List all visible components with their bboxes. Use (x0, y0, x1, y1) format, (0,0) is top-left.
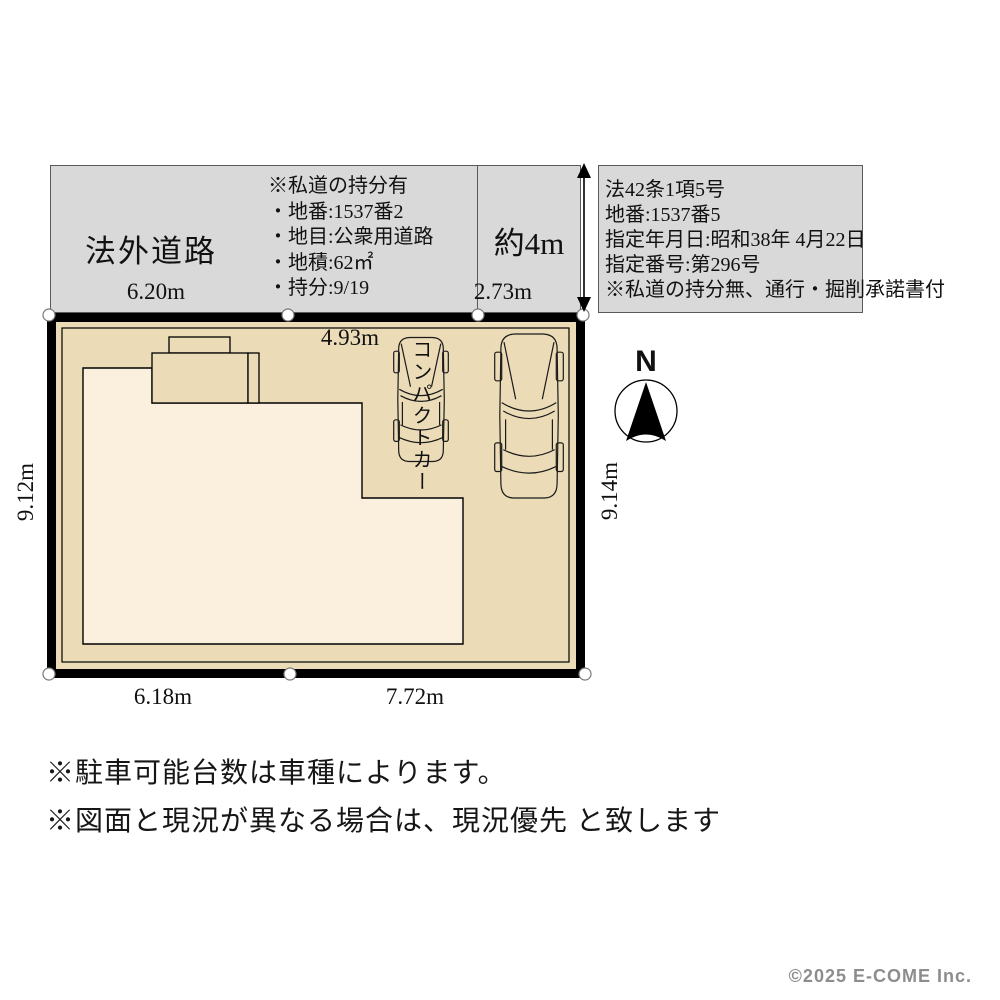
road-name-label: 法外道路 (71, 226, 231, 271)
road-width-arrow (577, 163, 591, 312)
private-road-notes: ※私道の持分有 ・地番:1537番2 ・地目:公衆用道路 ・地積:62㎡ ・持分… (268, 174, 434, 302)
road-width-label-620: 6.20m (116, 279, 196, 305)
footer-note-parking: ※駐車可能台数は車種によります。 (46, 751, 507, 791)
lot-top-dimension: 4.93m (310, 325, 390, 351)
plan-drawing (0, 0, 1000, 1000)
private-road-note-line: ・持分:9/19 (268, 276, 434, 302)
compass (615, 380, 677, 442)
lot-right-dimension: 9.14m (597, 451, 623, 531)
private-road-note-line: ※私道の持分有 (268, 174, 434, 200)
private-road-note-line: ・地番:1537番2 (268, 200, 434, 226)
site-plan-canvas: 法42条1項5号 地番:1537番5 指定年月日:昭和38年 4月22日 指定番… (0, 0, 1000, 1000)
road-approx-width-label: 約4m (479, 218, 579, 263)
porch-side (248, 353, 259, 403)
lot-bottom-dimension-left: 6.18m (123, 684, 203, 710)
porch-step (169, 337, 230, 353)
private-road-note-line: ・地目:公衆用道路 (268, 225, 434, 251)
copyright-notice: ©2025 E-COME Inc. (789, 966, 972, 987)
car-type-label: コンパクトカー (409, 339, 431, 509)
footer-note-disclaimer: ※図面と現況が異なる場合は、現況優先 と致します (46, 799, 721, 839)
compass-north-label: N (626, 345, 666, 379)
private-road-note-line: ・地積:62㎡ (268, 251, 434, 277)
road-width-label-273: 2.73m (463, 279, 543, 305)
porch-main (152, 353, 248, 403)
lot-bottom-dimension-right: 7.72m (375, 684, 455, 710)
lot-left-dimension: 9.12m (13, 452, 39, 532)
